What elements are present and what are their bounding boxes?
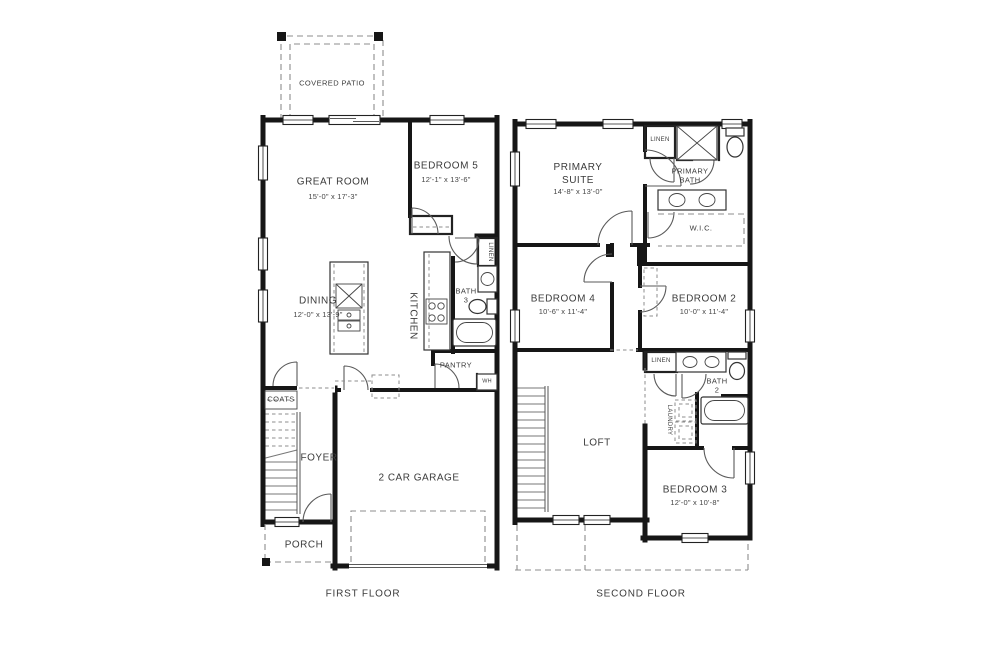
door-swing [654, 374, 676, 396]
door-swing [650, 158, 674, 182]
porch-label: PORCH [285, 539, 324, 552]
second-floor-stairs [518, 386, 549, 512]
vanity-icon [676, 352, 726, 372]
bedroom5-closet [410, 216, 452, 234]
first-floor-stairs [265, 391, 300, 514]
kitchen-counter [424, 252, 450, 350]
loft-label: LOFT [583, 437, 611, 450]
laundry-label: LAUNDRY [664, 405, 672, 436]
second-floor-exterior-walls [515, 122, 750, 541]
water-heater-label: WH [482, 378, 492, 385]
bath3-label: BATH 3 [455, 287, 476, 304]
bath2-label: BATH 2 [706, 377, 727, 394]
primary-suite-dims: 14'-8" x 13'-0" [553, 187, 602, 197]
bedroom4-label: BEDROOM 4 [531, 293, 596, 306]
door-swing [704, 448, 734, 478]
refrigerator-space [372, 375, 399, 398]
door-swing [648, 212, 674, 238]
great-room-dims: 15'-0" x 17'-3" [308, 192, 357, 202]
bath3-fixtures [453, 266, 497, 346]
door-swing [412, 208, 438, 234]
bedroom5-label: BEDROOM 5 [414, 160, 479, 173]
front-door-swing [303, 494, 331, 522]
bedroom2-dims: 10'-0" x 11'-4" [680, 307, 729, 317]
covered-patio-outline [277, 32, 383, 120]
wic-label: W.I.C. [690, 225, 713, 234]
linen-label-hall: LINEN [651, 358, 670, 366]
floor-plan-sheet: COVERED PATIO GREAT ROOM 15'-0" x 17'-3"… [0, 0, 993, 645]
door-swing [584, 254, 612, 282]
dining-dims: 12'-0" x 13'-9" [293, 310, 342, 320]
toilet-icon [727, 137, 743, 157]
door-swing [598, 211, 632, 245]
patio-sliding-door [329, 116, 380, 125]
coats-label: COATS [267, 396, 294, 405]
toilet-tank [726, 128, 744, 136]
patio-post [374, 32, 383, 41]
kitchen-label: KITCHEN [407, 292, 420, 339]
linen-label-upper: LINEN [650, 137, 669, 145]
pantry-label: PANTRY [440, 362, 472, 371]
bedroom5-dims: 12'-1" x 13'-6" [421, 175, 470, 185]
garage-label: 2 CAR GARAGE [378, 472, 459, 485]
covered-patio-label: COVERED PATIO [299, 80, 365, 89]
floor-plan-drawing [0, 0, 993, 645]
bedroom3-label: BEDROOM 3 [663, 484, 728, 497]
foyer-label: FOYER [301, 452, 338, 465]
toilet-icon [730, 363, 745, 380]
bedroom2-closet [644, 268, 657, 316]
bedroom3-dims: 12'-0" x 10'-8" [670, 498, 719, 508]
washer-dryer-icon [675, 400, 696, 443]
door-swing [682, 374, 706, 398]
primary-bath-label: PRIMARY BATH [672, 167, 709, 184]
primary-suite-label: PRIMARY SUITE [554, 161, 603, 187]
toilet-tank [487, 299, 497, 314]
second-floor-windows [511, 120, 755, 543]
second-floor-caption: SECOND FLOOR [596, 588, 686, 601]
footprint-outline [515, 525, 748, 570]
patio-post [277, 32, 286, 41]
bedroom2-label: BEDROOM 2 [672, 293, 737, 306]
dining-label: DINING [299, 295, 337, 308]
garage-door [349, 511, 487, 571]
tub-icon [453, 319, 496, 346]
bedroom4-dims: 10'-6" x 11'-4" [539, 307, 588, 317]
linen-label-first-floor: LINEN [485, 242, 493, 261]
door-swing [455, 238, 479, 262]
toilet-tank [728, 352, 746, 359]
tub-icon [701, 397, 748, 424]
great-room-label: GREAT ROOM [297, 176, 369, 189]
vanity-icon [658, 190, 726, 210]
porch-post [262, 558, 270, 566]
first-floor-caption: FIRST FLOOR [326, 588, 401, 601]
door-swing [273, 362, 297, 386]
